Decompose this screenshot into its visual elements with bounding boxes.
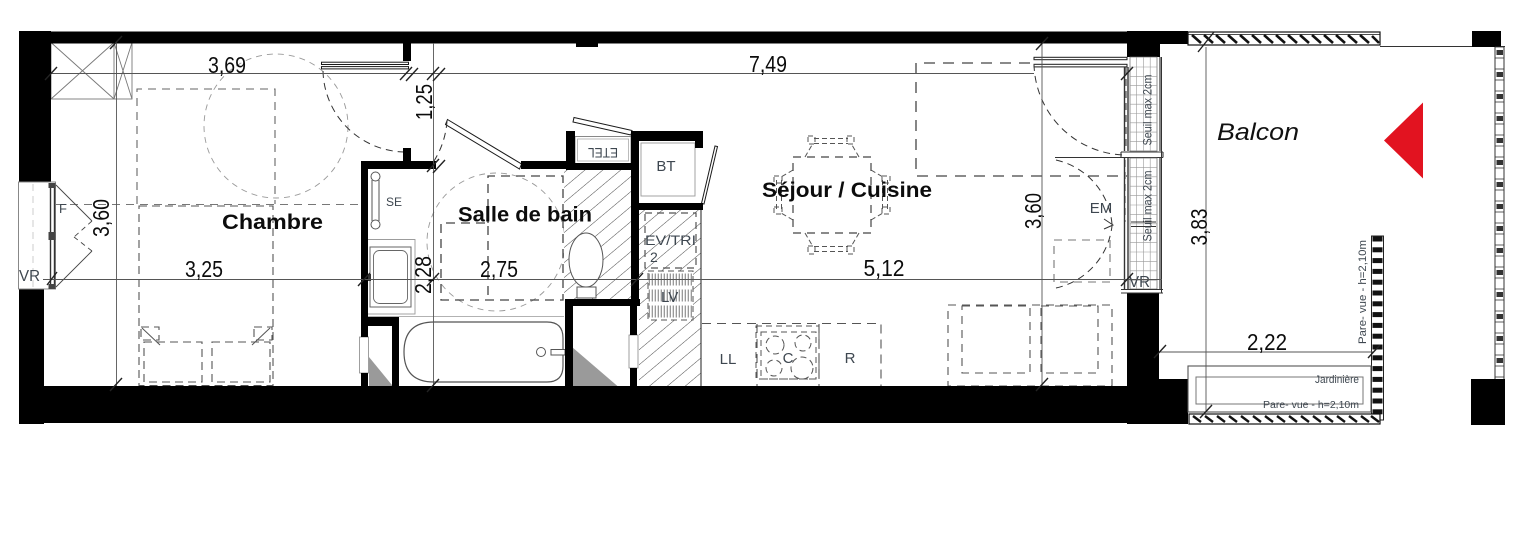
svg-text:5,12: 5,12 — [864, 255, 905, 281]
svg-text:2,28: 2,28 — [410, 256, 436, 294]
svg-text:VR: VR — [1129, 274, 1150, 291]
svg-text:Chambre: Chambre — [222, 210, 323, 234]
svg-text:SE: SE — [386, 195, 402, 209]
svg-text:BT: BT — [656, 158, 675, 175]
svg-text:Salle de bain: Salle de bain — [458, 203, 592, 227]
svg-text:3,69: 3,69 — [208, 52, 246, 78]
svg-text:F: F — [59, 201, 67, 216]
svg-text:ETEL: ETEL — [588, 145, 618, 161]
svg-text:EM: EM — [1090, 200, 1113, 217]
svg-text:3,60: 3,60 — [88, 199, 114, 237]
svg-text:LL: LL — [720, 351, 737, 368]
svg-text:3,60: 3,60 — [1020, 193, 1046, 229]
svg-text:1,25: 1,25 — [411, 84, 437, 120]
svg-text:Seuil max 2cm: Seuil max 2cm — [1141, 75, 1155, 146]
svg-text:2,22: 2,22 — [1247, 329, 1287, 355]
svg-text:3,83: 3,83 — [1186, 209, 1212, 246]
svg-text:R: R — [845, 350, 856, 367]
svg-text:VR: VR — [19, 268, 40, 285]
svg-text:3,25: 3,25 — [185, 256, 223, 282]
svg-text:Jardinière: Jardinière — [1315, 374, 1359, 386]
svg-text:Pare- vue - h=2,10m: Pare- vue - h=2,10m — [1263, 399, 1359, 411]
svg-text:7,49: 7,49 — [749, 51, 787, 77]
svg-text:LV: LV — [661, 289, 678, 306]
svg-text:C: C — [783, 350, 794, 367]
svg-text:2: 2 — [650, 249, 658, 265]
svg-text:2,75: 2,75 — [480, 256, 518, 282]
svg-text:Balcon: Balcon — [1217, 119, 1299, 146]
svg-text:Seuil max 2cm: Seuil max 2cm — [1141, 171, 1155, 242]
svg-text:Séjour / Cuisine: Séjour / Cuisine — [762, 178, 932, 202]
svg-text:EV/TRI: EV/TRI — [645, 232, 696, 248]
svg-text:Pare- vue - h=2,10m: Pare- vue - h=2,10m — [1357, 240, 1369, 344]
